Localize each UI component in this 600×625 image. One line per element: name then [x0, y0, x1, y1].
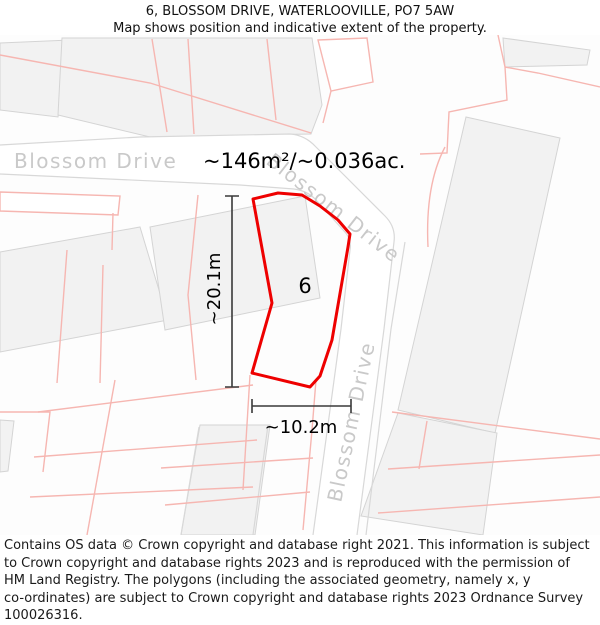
- building: [58, 38, 322, 137]
- footer-line: co-ordinates) are subject to Crown copyr…: [0, 590, 600, 608]
- map-canvas: Blossom Drive Blossom Drive Blossom Driv…: [0, 35, 600, 535]
- copyright-footer: Contains OS data © Crown copyright and d…: [0, 537, 600, 625]
- plot-number-label: 6: [298, 274, 311, 298]
- footer-line: 100026316.: [0, 607, 600, 625]
- footer-line: HM Land Registry. The polygons (includin…: [0, 572, 600, 590]
- parcel-line: [112, 213, 113, 250]
- footer-line: to Crown copyright and database rights 2…: [0, 555, 600, 573]
- page-subtitle: Map shows position and indicative extent…: [0, 19, 600, 36]
- area-label: ~146m²/~0.036ac.: [203, 149, 405, 173]
- dimension-label-vertical: ~20.1m: [204, 253, 225, 326]
- dimension-label-horizontal: ~10.2m: [265, 417, 338, 438]
- parcel: [0, 192, 120, 215]
- page-title: 6, BLOSSOM DRIVE, WATERLOOVILLE, PO7 5AW: [0, 0, 600, 19]
- footer-line: Contains OS data © Crown copyright and d…: [0, 537, 600, 555]
- map-header: 6, BLOSSOM DRIVE, WATERLOOVILLE, PO7 5AW…: [0, 0, 600, 35]
- map-svg: Blossom Drive Blossom Drive Blossom Driv…: [0, 35, 600, 535]
- road-label-horizontal: Blossom Drive: [14, 149, 177, 173]
